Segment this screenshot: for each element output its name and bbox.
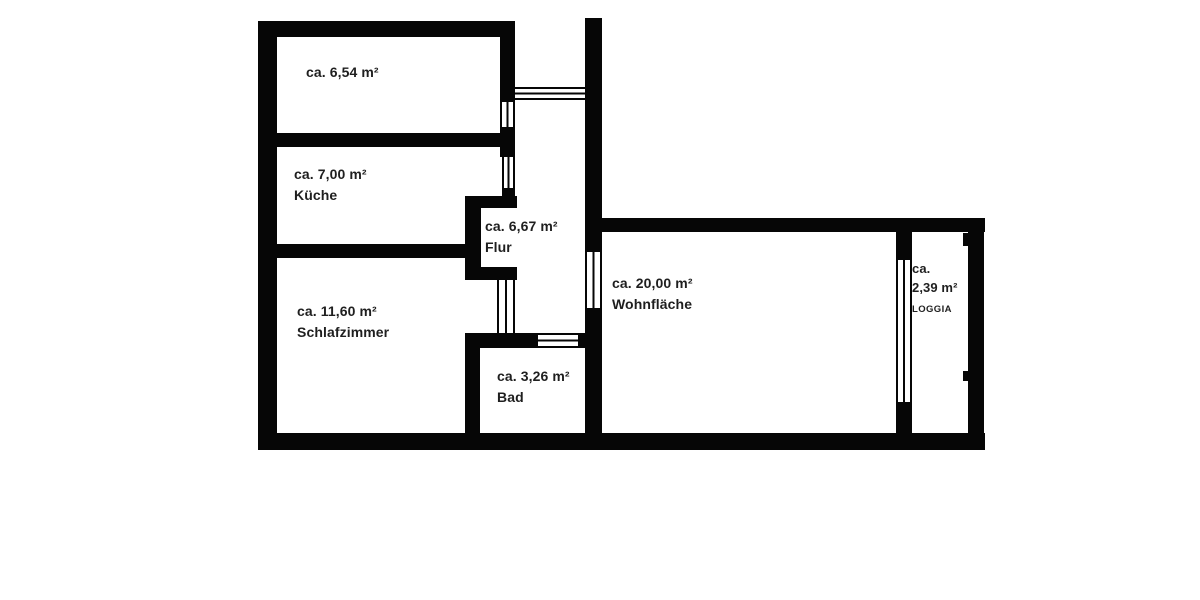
wall-divider-room1-kueche — [260, 133, 515, 147]
loggia-name: LOGGIA — [912, 304, 958, 315]
flur-name: Flur — [485, 237, 558, 258]
wall-loggia-divider-bottom — [896, 402, 912, 433]
room-label-flur: ca. 6,67 m² Flur — [485, 216, 558, 258]
window-room1-corridor — [500, 102, 515, 127]
floor-plan: ca. 6,54 m² ca. 7,00 m² Küche ca. 6,67 m… — [0, 0, 1200, 600]
door-flur-wohnflaeche — [585, 252, 602, 308]
wall-outer-top-left — [258, 21, 515, 37]
wall-bad-left — [465, 348, 480, 433]
flur-area: ca. 6,67 m² — [485, 216, 558, 237]
room1-area: ca. 6,54 m² — [306, 62, 379, 83]
wall-tick-loggia-top — [963, 233, 968, 246]
wall-middle-lower — [585, 308, 602, 450]
room-label-wohnflaeche: ca. 20,00 m² Wohnfläche — [612, 273, 693, 315]
kueche-area: ca. 7,00 m² — [294, 164, 367, 185]
wall-bad-top — [465, 333, 540, 348]
wall-room1-right-upper — [500, 21, 515, 102]
door-kueche — [502, 157, 515, 188]
entrance-door — [515, 87, 585, 100]
wall-step-schlafzimmer — [465, 267, 517, 280]
bad-name: Bad — [497, 387, 570, 408]
schlafzimmer-name: Schlafzimmer — [297, 322, 389, 343]
wall-bad-top-right — [578, 333, 585, 348]
loggia-area-prefix: ca. — [912, 259, 958, 278]
wall-outer-right — [968, 218, 984, 450]
room-label-bad: ca. 3,26 m² Bad — [497, 366, 570, 408]
wall-outer-top-right — [602, 218, 985, 232]
wall-middle-upper — [585, 18, 602, 252]
wall-tick-loggia-bottom — [963, 371, 968, 381]
schlafzimmer-area: ca. 11,60 m² — [297, 301, 389, 322]
room-label-kueche: ca. 7,00 m² Küche — [294, 164, 367, 206]
room-label-schlafzimmer: ca. 11,60 m² Schlafzimmer — [297, 301, 389, 343]
kueche-name: Küche — [294, 185, 367, 206]
wall-loggia-divider-top — [896, 232, 912, 260]
room-label-room1: ca. 6,54 m² — [306, 62, 379, 83]
wall-outer-left — [258, 21, 277, 450]
door-bad — [538, 333, 580, 348]
wohnflaeche-name: Wohnfläche — [612, 294, 693, 315]
wall-outer-bottom — [258, 433, 985, 450]
wohnflaeche-area: ca. 20,00 m² — [612, 273, 693, 294]
door-schlafzimmer — [497, 280, 515, 333]
window-loggia — [896, 260, 912, 402]
wall-divider-kueche-schlafzimmer — [260, 244, 478, 258]
bad-area: ca. 3,26 m² — [497, 366, 570, 387]
loggia-area: 2,39 m² — [912, 278, 958, 297]
room-label-loggia: ca. 2,39 m² LOGGIA — [912, 259, 958, 315]
